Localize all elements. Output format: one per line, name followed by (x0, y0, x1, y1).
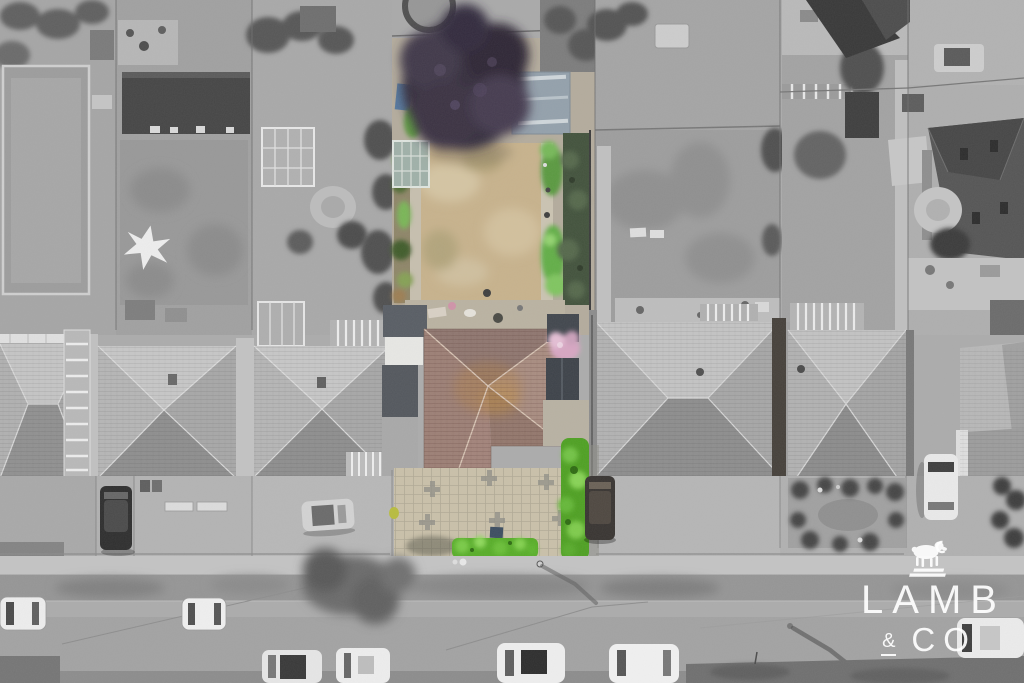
brand-lamb: LAMB (849, 580, 1009, 620)
brand-co-text: CO (903, 621, 977, 658)
watermark: LAMB &CO (849, 533, 1009, 656)
ram-icon (901, 533, 957, 579)
brand-ampersand: & (881, 630, 896, 656)
aerial-photo: LAMB &CO (0, 0, 1024, 683)
brand-co: &CO (849, 623, 1009, 656)
